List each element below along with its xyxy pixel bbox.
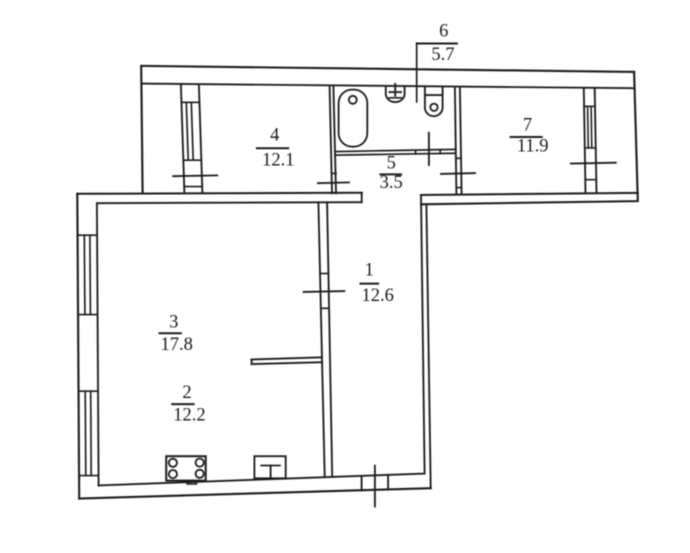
svg-text:6: 6	[439, 22, 448, 42]
svg-text:3.5: 3.5	[380, 173, 403, 193]
svg-text:2: 2	[182, 383, 191, 403]
svg-text:11.9: 11.9	[517, 137, 549, 157]
svg-text:3: 3	[169, 312, 178, 332]
svg-text:7: 7	[523, 116, 532, 136]
svg-text:17.8: 17.8	[161, 335, 193, 355]
svg-text:12.2: 12.2	[173, 405, 205, 425]
svg-text:12.6: 12.6	[362, 286, 394, 306]
svg-text:12.1: 12.1	[262, 151, 294, 171]
svg-text:5.7: 5.7	[431, 45, 454, 65]
svg-text:1: 1	[365, 261, 374, 281]
svg-text:5: 5	[387, 154, 396, 174]
svg-text:4: 4	[270, 125, 279, 145]
